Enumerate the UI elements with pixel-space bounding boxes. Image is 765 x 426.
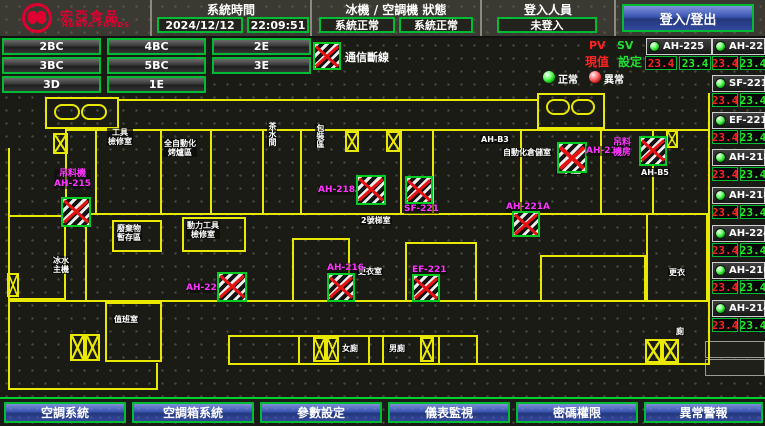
hmi-screen: 宏亞食品 HUNYA FOODS 系統時間 冰機 / 空調機 狀態 登入人員 2… xyxy=(0,0,765,426)
pv-value: 23.4 xyxy=(712,130,738,144)
ahu-status-value: 系統正常 xyxy=(399,17,473,33)
unit-values-ah-218a: 23.4 23.4 xyxy=(712,167,765,181)
pv-value: 23.4 xyxy=(712,93,738,107)
floor-button-1e[interactable]: 1E xyxy=(107,76,206,93)
sv-value: 23.4 xyxy=(740,167,765,181)
system-clock-value: 22:09:51 xyxy=(247,17,309,33)
map-wall xyxy=(118,99,539,101)
unit-button-ah-218b[interactable]: AH-218B xyxy=(712,187,765,204)
map-wall xyxy=(262,131,264,215)
stair-icon xyxy=(53,133,68,154)
device-label-ah-216: AH-216 xyxy=(327,263,364,273)
room-label: 動力工具 檢修室 xyxy=(186,221,220,239)
unit-led-icon xyxy=(715,228,726,239)
unit-button-ah-216[interactable]: AH-216 xyxy=(712,262,765,279)
map-wall xyxy=(54,104,80,120)
room-label: 冰水 主機 xyxy=(52,256,70,274)
pv-value: 23.4 xyxy=(712,205,738,219)
sv-value: 23.4 xyxy=(740,130,765,144)
normal-label: 正常 xyxy=(558,71,578,86)
room-label: 全自動化 烤爐區 xyxy=(163,139,197,157)
unit-values-ah-216: 23.4 23.4 xyxy=(712,280,765,294)
unit-led-icon xyxy=(715,265,726,276)
comm-fail-legend-label: 通信斷線 xyxy=(345,49,389,65)
room-label: 女廁 xyxy=(341,344,359,353)
stair-icon xyxy=(666,130,678,148)
login-user-value: 未登入 xyxy=(497,17,597,33)
pv-header: PV xyxy=(589,39,606,52)
floor-button-2e[interactable]: 2E xyxy=(212,38,311,55)
system-time-label: 系統時間 xyxy=(152,1,310,18)
map-wall xyxy=(571,99,595,115)
floor-button-4bc[interactable]: 4BC xyxy=(107,38,206,55)
pv-name-label: 現值 xyxy=(585,53,609,70)
room-label: 包裝區 xyxy=(315,124,325,148)
sv-value: 23.4 xyxy=(740,56,765,70)
map-wall xyxy=(438,337,440,363)
comm-fail-icon-ef-221[interactable] xyxy=(412,274,440,302)
spare-slot xyxy=(705,341,765,358)
room-label: AH-B5 xyxy=(640,168,670,177)
map-wall xyxy=(368,337,370,363)
map-wall xyxy=(65,213,646,215)
footer-separator xyxy=(0,397,765,399)
map-wall xyxy=(540,255,646,302)
map-wall xyxy=(228,363,710,365)
floor-button-2bc[interactable]: 2BC xyxy=(2,38,101,55)
map-wall xyxy=(210,131,212,215)
map-wall xyxy=(81,104,107,120)
room-label: 更衣 xyxy=(668,268,686,277)
pv-value: 23.4 xyxy=(712,167,738,181)
device-label-ah-215: 吊料機 AH-215 xyxy=(54,169,91,189)
room-label: 茶水間 xyxy=(267,122,277,146)
stair-icon xyxy=(7,273,19,297)
room-label: 男廁 xyxy=(388,344,406,353)
unit-led-icon xyxy=(715,115,726,126)
pv-value: 23.4 xyxy=(712,243,738,257)
pv-value: 23.4 xyxy=(645,56,677,70)
map-wall xyxy=(708,93,710,365)
map-wall xyxy=(476,335,478,365)
room-label: 2號梯室 xyxy=(360,216,392,225)
map-wall xyxy=(546,99,570,115)
comm-fail-icon-ah-218a[interactable] xyxy=(356,175,386,205)
map-wall xyxy=(228,335,478,337)
comm-fail-icon-hoist-room[interactable] xyxy=(639,136,667,166)
room-label: AH-B3 xyxy=(480,135,510,144)
unit-button-ah-224[interactable]: AH-224 xyxy=(712,225,765,242)
nav-button-ahu-system[interactable]: 空調箱系統 xyxy=(132,402,254,423)
room-label: 值班室 xyxy=(113,315,139,324)
stair-icon xyxy=(420,337,434,362)
unit-values-ah-221a: 23.4 23.4 xyxy=(712,56,765,70)
nav-button-password-auth[interactable]: 密碼權限 xyxy=(516,402,638,423)
stair-icon xyxy=(662,339,679,363)
map-wall xyxy=(298,337,300,363)
nav-button-param-setting[interactable]: 參數設定 xyxy=(260,402,382,423)
nav-button-ac-system[interactable]: 空調系統 xyxy=(4,402,126,423)
unit-led-icon xyxy=(715,152,726,163)
pv-value: 23.4 xyxy=(712,280,738,294)
unit-button-ah-214[interactable]: AH-214 xyxy=(712,300,765,317)
room-label: 廁 xyxy=(675,327,685,336)
map-wall xyxy=(382,337,384,363)
unit-button-ah-225[interactable]: AH-225 xyxy=(646,38,712,55)
stair-icon xyxy=(326,337,339,362)
chiller-status-value: 系統正常 xyxy=(319,17,395,33)
abnormal-label: 異常 xyxy=(604,71,624,86)
unit-led-icon xyxy=(715,190,726,201)
device-label-sf-221: SF-221 xyxy=(404,204,439,214)
floor-button-5bc[interactable]: 5BC xyxy=(107,57,206,74)
login-user-label: 登入人員 xyxy=(482,1,614,18)
nav-button-meter-monitor[interactable]: 儀表監視 xyxy=(388,402,510,423)
stair-icon xyxy=(386,131,401,152)
comm-fail-legend-icon xyxy=(313,42,341,70)
unit-led-icon xyxy=(715,303,726,314)
unit-led-icon xyxy=(715,78,726,89)
top-bar: 宏亞食品 HUNYA FOODS 系統時間 冰機 / 空調機 狀態 登入人員 2… xyxy=(0,0,765,38)
map-wall xyxy=(160,131,162,215)
room-label: 自動化倉儲室 xyxy=(502,148,552,157)
stair-icon xyxy=(645,339,662,363)
pv-value: 23.4 xyxy=(712,318,738,332)
map-wall xyxy=(646,213,708,302)
sv-value: 23.4 xyxy=(740,205,765,219)
comm-fail-icon-ah-221a[interactable] xyxy=(512,211,540,237)
map-wall xyxy=(8,388,158,390)
sv-header: SV xyxy=(617,39,633,52)
floor-button-3e[interactable]: 3E xyxy=(212,57,311,74)
map-wall xyxy=(156,363,158,390)
brand-subname: HUNYA FOODS xyxy=(62,21,130,29)
map-wall xyxy=(85,215,87,300)
floor-button-3bc[interactable]: 3BC xyxy=(2,57,101,74)
comm-fail-icon-ah-224[interactable] xyxy=(217,272,247,302)
room-label: 廢棄物 暫存區 xyxy=(116,224,142,242)
map-wall xyxy=(300,131,302,215)
sv-value: 23.4 xyxy=(740,318,765,332)
brand-section: 宏亞食品 HUNYA FOODS xyxy=(0,0,150,36)
map-wall xyxy=(105,302,162,362)
sv-value: 23.4 xyxy=(740,93,765,107)
unit-values-ah-218b: 23.4 23.4 xyxy=(712,205,765,219)
abnormal-led-icon xyxy=(588,70,602,84)
unit-button-sf-221[interactable]: SF-221 xyxy=(712,75,765,92)
stair-icon xyxy=(70,334,85,361)
floor-button-3d[interactable]: 3D xyxy=(2,76,101,93)
stair-icon xyxy=(345,131,359,152)
room-label: 工具 檢修室 xyxy=(107,128,133,146)
comm-fail-icon-sf-221[interactable] xyxy=(405,176,433,204)
unit-values-ah-225: 23.4 23.4 xyxy=(645,56,711,70)
sv-value: 23.4 xyxy=(679,56,711,70)
map-wall xyxy=(600,131,602,215)
stair-icon xyxy=(313,337,326,362)
pv-value: 23.4 xyxy=(712,56,738,70)
comm-fail-icon-ah-215[interactable] xyxy=(61,197,91,227)
device-label-hoist-room: 吊料 機房 xyxy=(613,138,631,158)
system-date-value: 2024/12/12 xyxy=(157,17,243,33)
unit-led-icon xyxy=(715,41,726,52)
unit-button-ef-221[interactable]: EF-221 xyxy=(712,112,765,129)
unit-values-ah-224: 23.4 23.4 xyxy=(712,243,765,257)
sv-value: 23.4 xyxy=(740,243,765,257)
normal-led-icon xyxy=(542,70,556,84)
unit-values-ah-214: 23.4 23.4 xyxy=(712,318,765,332)
unit-values-ef-221: 23.4 23.4 xyxy=(712,130,765,144)
machine-status-label: 冰機 / 空調機 狀態 xyxy=(312,1,480,18)
comm-fail-icon-ah-218b[interactable] xyxy=(557,142,587,173)
unit-button-ah-221a[interactable]: AH-221A xyxy=(712,38,765,55)
unit-led-icon xyxy=(649,41,660,52)
stair-icon xyxy=(85,334,100,361)
brand-logo-icon xyxy=(22,3,52,33)
comm-fail-icon-ah-216[interactable] xyxy=(327,273,355,302)
spare-slot xyxy=(705,359,765,376)
map-wall xyxy=(228,335,230,365)
login-logout-button[interactable]: 登入/登出 xyxy=(622,4,754,32)
unit-values-sf-221: 23.4 23.4 xyxy=(712,93,765,107)
nav-button-alarm[interactable]: 異常警報 xyxy=(644,402,763,423)
sv-value: 23.4 xyxy=(740,280,765,294)
sv-name-label: 設定 xyxy=(618,53,642,70)
unit-button-ah-218a[interactable]: AH-218A xyxy=(712,149,765,166)
map-wall xyxy=(95,131,97,215)
